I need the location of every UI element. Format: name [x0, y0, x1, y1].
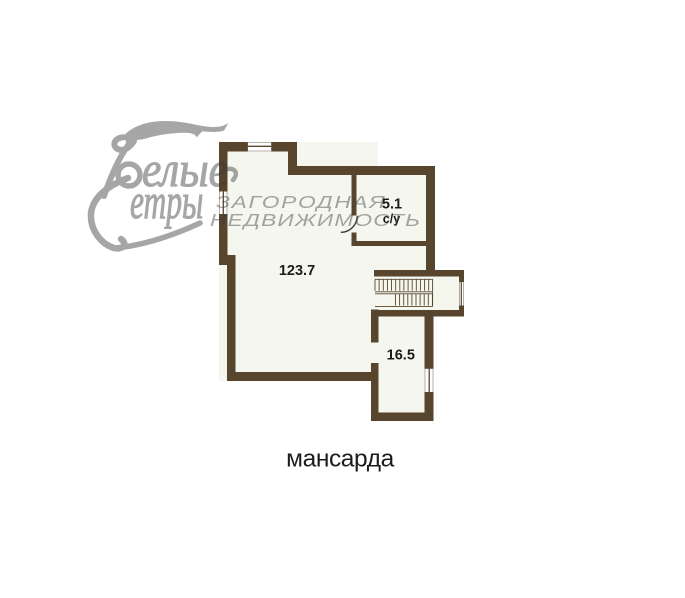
svg-text:мансарда: мансарда: [286, 446, 394, 473]
svg-text:ЗАГОРОДНАЯ: ЗАГОРОДНАЯ: [216, 193, 386, 212]
svg-text:НЕДВИЖИМОСТЬ: НЕДВИЖИМОСТЬ: [210, 211, 421, 230]
svg-text:16.5: 16.5: [387, 347, 415, 363]
svg-text:етры: етры: [130, 175, 203, 230]
svg-text:123.7: 123.7: [279, 263, 315, 279]
